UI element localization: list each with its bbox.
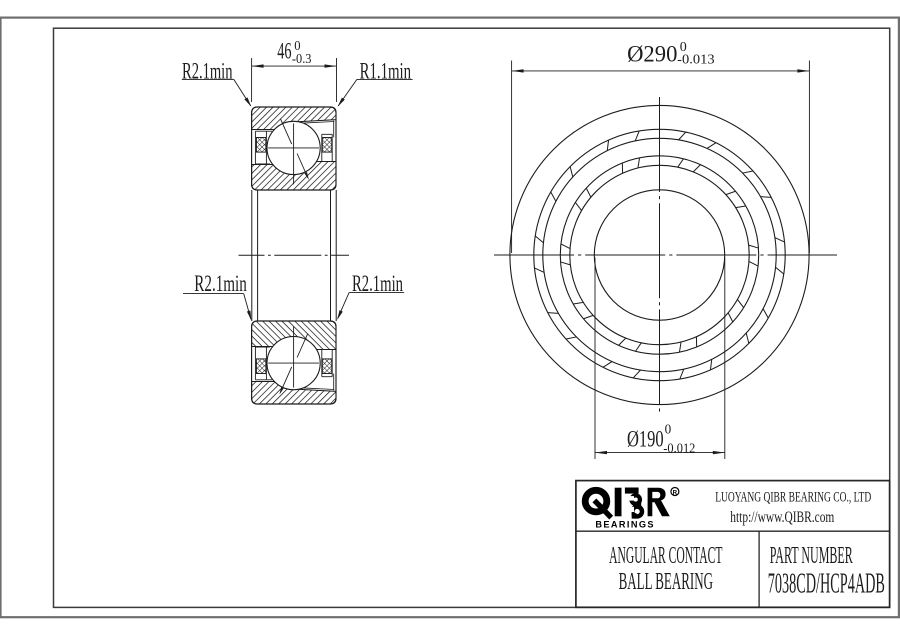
- svg-text:BALL BEARING: BALL BEARING: [619, 568, 713, 595]
- svg-text:-0.3: -0.3: [292, 52, 312, 67]
- svg-text:0: 0: [665, 422, 672, 437]
- svg-text:PART NUMBER: PART NUMBER: [770, 542, 853, 569]
- svg-text:46: 46: [277, 38, 291, 63]
- svg-text:ANGULAR CONTACT: ANGULAR CONTACT: [609, 542, 722, 569]
- svg-text:BEARINGS: BEARINGS: [595, 519, 655, 529]
- svg-text:R2.1min: R2.1min: [194, 271, 247, 296]
- svg-text:Ø190: Ø190: [627, 427, 664, 452]
- svg-text:-0.013: -0.013: [677, 52, 714, 67]
- svg-text:LUOYANG QIBR BEARING CO., LTD: LUOYANG QIBR BEARING CO., LTD: [715, 490, 871, 506]
- svg-text:R: R: [673, 489, 678, 496]
- svg-text:Ø290: Ø290: [627, 41, 677, 66]
- svg-text:http://www.QIBR.com: http://www.QIBR.com: [730, 509, 834, 526]
- svg-text:7038CD/HCP4ADB: 7038CD/HCP4ADB: [768, 569, 885, 600]
- svg-text:-0.012: -0.012: [663, 442, 695, 457]
